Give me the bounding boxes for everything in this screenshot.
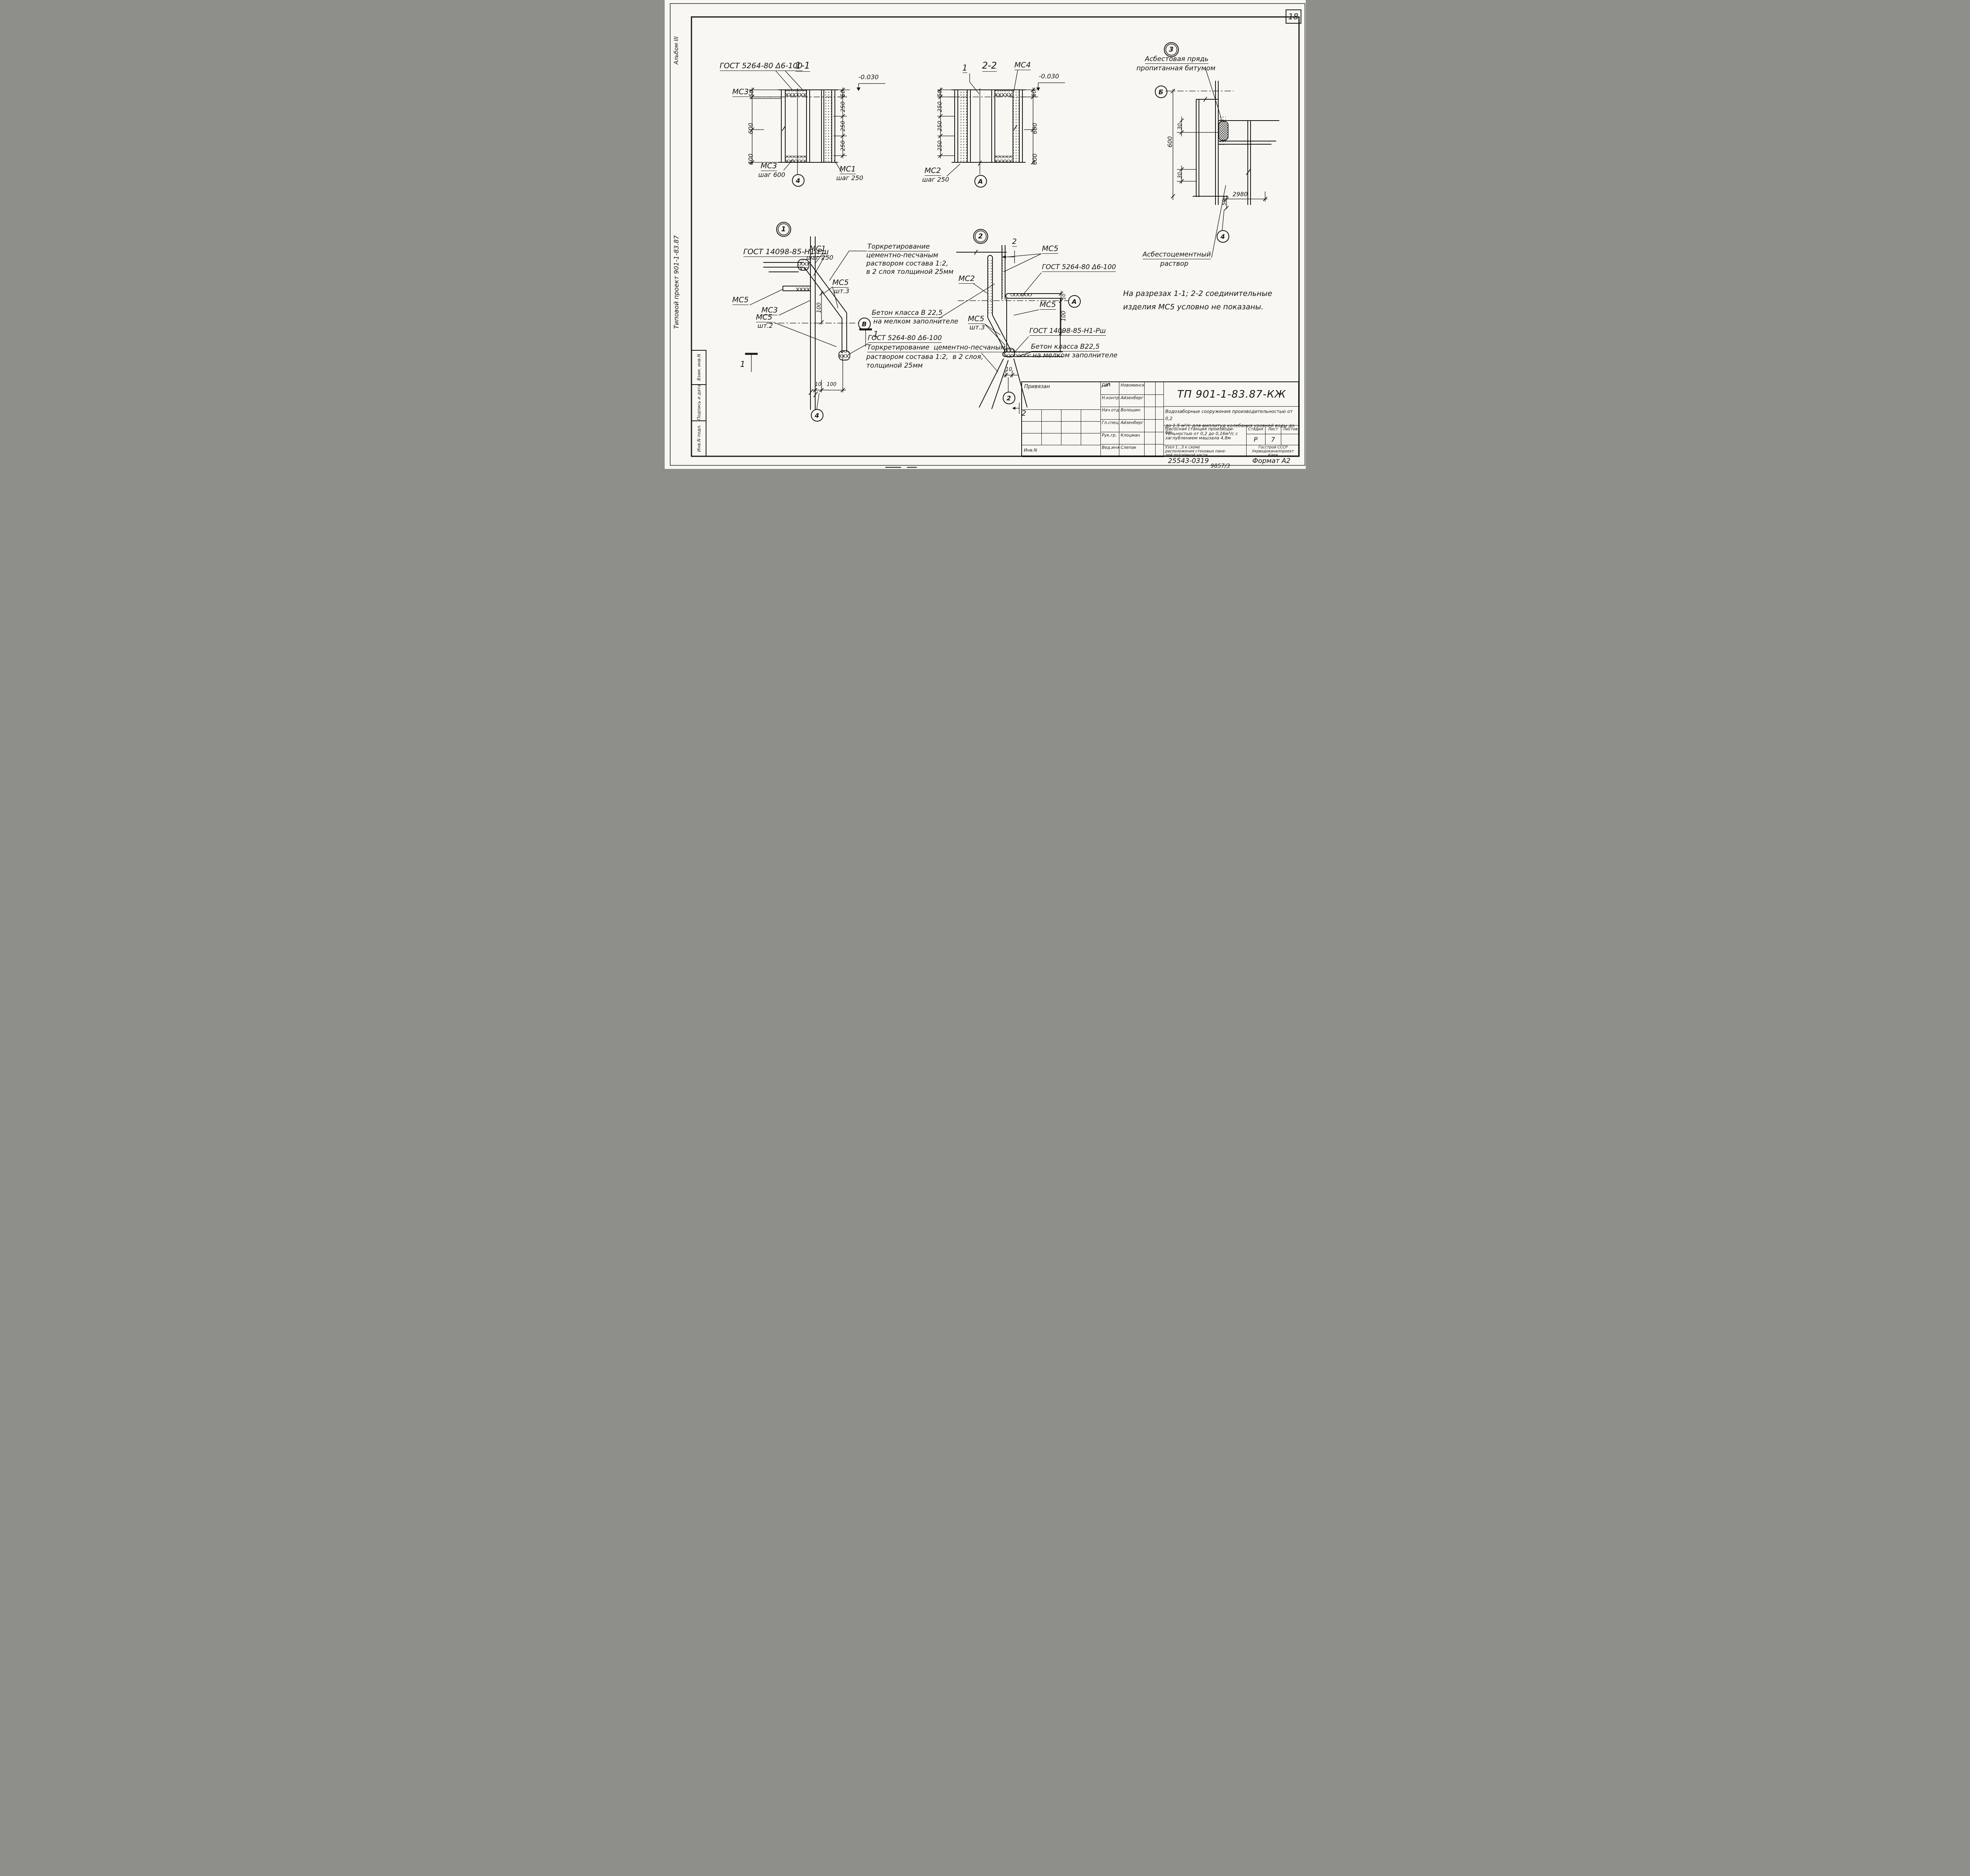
- sheets-value: [1281, 434, 1300, 445]
- role-title: Рук.гр.: [1101, 432, 1120, 444]
- drawing-label: 250: [840, 102, 846, 112]
- stage-label: Стадия: [1247, 426, 1266, 434]
- d1-ms5-left: МС5: [732, 296, 749, 305]
- drawing-label: 50: [840, 90, 846, 97]
- signature-scribble: [1145, 420, 1156, 432]
- drawing-label: раствором состава 1:2, в 2 слоя,: [866, 354, 983, 361]
- drawing-label: 30: [1177, 172, 1182, 179]
- drawing-label: шт.3: [834, 288, 849, 294]
- drawing-label: 50: [1031, 90, 1037, 97]
- drawing-label: 50: [749, 90, 755, 97]
- drawing-label: 100: [1061, 311, 1067, 322]
- sheet: Альбом IIIТиповой проект 901-1-83.87Взам…: [665, 0, 1306, 469]
- title-block-grid: [1022, 410, 1101, 445]
- node-Б: Б: [1155, 86, 1167, 98]
- drawing-label: шаг 250: [836, 175, 863, 181]
- doc-number: 25543-03: [1168, 458, 1201, 465]
- drawing-label: 250: [840, 141, 846, 151]
- s22-ms4: МС4: [1015, 61, 1031, 70]
- d1-concrete-1: Бетон класса В 22,5: [872, 310, 943, 318]
- d1-ms5-right: МС5: [833, 279, 849, 288]
- drawing-label: 10: [1061, 294, 1066, 299]
- project-code: ТП 901-1-83.87-КЖ: [1164, 382, 1300, 407]
- note-line-1: На разрезах 1-1; 2-2 соединительные: [1123, 290, 1272, 297]
- role-name: Айзенберг: [1119, 420, 1145, 432]
- drawing-label: 600: [1032, 123, 1038, 134]
- tb-grid-cell: [1061, 410, 1081, 422]
- drawing-label: 2980: [1233, 192, 1248, 197]
- stage-value: Р: [1247, 434, 1266, 445]
- tb-grid-cell: [1042, 410, 1061, 422]
- drawing-label: в 2 слоя толщиной 25мм: [866, 269, 953, 275]
- drawing-label: шаг 250: [922, 177, 949, 183]
- node-2: 2: [1003, 392, 1015, 404]
- stamp-cell-inv: Инв.N подл.: [697, 424, 701, 452]
- title-block: Привязан Инв.N ГИПНовоминскийН.контр.Айз…: [1021, 381, 1299, 456]
- d2-ms2: МС2: [959, 275, 975, 284]
- role-name: Айзенберг: [1119, 395, 1145, 407]
- album-label: Альбом III: [674, 36, 679, 64]
- tb-grid-cell: [1061, 433, 1081, 445]
- tb-grid-cell: [1081, 433, 1101, 445]
- node-4: 4: [1217, 230, 1229, 243]
- role-date-cell: [1156, 407, 1163, 419]
- tb-grid-cell: [1022, 410, 1042, 422]
- node-1: 1: [776, 222, 791, 237]
- role-date-cell: [1156, 395, 1163, 407]
- drawing-label: раствором состава 1:2,: [866, 260, 948, 267]
- drawing-label: 50: [937, 90, 943, 97]
- drawing-label: шт.3: [970, 324, 985, 331]
- tb-grid-cell: [1081, 422, 1101, 433]
- tb-grid-cell: [1022, 422, 1042, 433]
- s11-title: 1-1: [795, 61, 810, 72]
- sheet-value: 7: [1266, 434, 1281, 445]
- d2-concrete-1: Бетон класса В22,5: [1031, 344, 1100, 351]
- d3-asbest-1: Асбестовая прядь: [1145, 56, 1209, 64]
- drawing-label: 250: [937, 121, 943, 132]
- d1-ms5-bottom: МС5: [756, 314, 773, 322]
- s11-gost-weld: ГОСТ 5264-80 Δ6-100: [720, 62, 803, 71]
- text-line: лей подземной части: [1165, 454, 1246, 457]
- text-line: Киев: [1247, 454, 1300, 457]
- project-label: Типовой проект 901-1-83.87: [673, 235, 680, 329]
- d1-ms1: МС1: [810, 245, 826, 254]
- d1-marker-1a: 1: [740, 360, 745, 368]
- s22-node1-ref: 1: [963, 64, 968, 73]
- project-description-1: Водозаборные сооружения производительнос…: [1165, 408, 1299, 422]
- d1-shotcrete-1: Торкретирование: [868, 244, 930, 251]
- drawing-label: 250: [937, 141, 943, 151]
- drawing-label: 250: [840, 121, 846, 132]
- text-line: Насосная станция производи-: [1165, 427, 1246, 431]
- drawing-label: на мелком заполнителе: [873, 318, 959, 325]
- signature-scribble: [1145, 382, 1156, 394]
- d3-mortar-2: раствор: [1160, 261, 1189, 268]
- sheets-label: Листов: [1281, 426, 1300, 434]
- sheet-title-cell: Узел 1...3 к схемерасположения стеновых …: [1164, 445, 1247, 457]
- section-marker-bars: [745, 329, 872, 354]
- role-row: Гл.спец.Айзенберг: [1101, 420, 1163, 432]
- s11-elevation: -0.030: [859, 74, 879, 80]
- s22-elevation: -0.030: [1039, 73, 1059, 80]
- d2-gost-5264: ГОСТ 5264-80 Δ6-100: [1042, 264, 1116, 272]
- drawing-label: шаг 250: [807, 255, 833, 261]
- tb-grid-cell: [1081, 410, 1101, 422]
- tb-grid-cell: [1061, 422, 1081, 433]
- note-line-2: изделия МС5 условно не показаны.: [1123, 303, 1264, 311]
- object-cell: Насосная станция производи-тельностью от…: [1164, 426, 1247, 445]
- s11-ms3-left: МС3: [732, 88, 749, 97]
- drawing-label: толщиной 25мм: [866, 363, 923, 369]
- role-date-cell: [1156, 432, 1163, 444]
- role-title: Нач.отд.: [1101, 407, 1120, 419]
- d2-marker-2a: 2: [1012, 238, 1017, 247]
- role-name: Слепак: [1119, 444, 1145, 457]
- stamp-cell-podpis: Подпись и дата: [697, 384, 701, 420]
- drawing-label: на мелком заполнителе: [1033, 352, 1118, 359]
- drawing-label: 10: [815, 382, 821, 387]
- sheet-number: 18: [1288, 12, 1298, 21]
- sheet-number-box: 18: [1286, 9, 1301, 24]
- node-В: В: [858, 318, 871, 330]
- sheet-label: Лист: [1266, 426, 1281, 434]
- role-name: Новоминский: [1119, 382, 1145, 394]
- role-date-cell: [1156, 382, 1163, 394]
- signature-scribble: [1145, 444, 1156, 457]
- role-name: Волошин: [1119, 407, 1145, 419]
- role-row: Нач.отд.Волошин: [1101, 407, 1163, 420]
- s11-ms3-bottom: МС3: [761, 162, 777, 171]
- shotcrete2-1: Торкретирование цементно-песчаным: [867, 344, 1006, 352]
- d2-gost-14098: ГОСТ 14098-85-Н1-Рш: [1030, 328, 1106, 336]
- tb-grid-cell: [1042, 422, 1061, 433]
- s11-ms1: МС1: [840, 165, 856, 174]
- role-row: Н.контр.Айзенберг: [1101, 395, 1163, 407]
- role-title: Вед.инж.: [1101, 444, 1120, 457]
- role-date-cell: [1156, 420, 1163, 432]
- drawing-label: 50: [1222, 199, 1227, 205]
- signature-scribble: [1145, 432, 1156, 444]
- drawing-label: 600: [1167, 136, 1173, 148]
- d2-ms5-top: МС5: [1042, 245, 1059, 254]
- inv-cell: Инв.N: [1022, 445, 1101, 457]
- d3-asbest-2: пропитанная битумом: [1136, 65, 1215, 72]
- order-number: 9857/3: [1211, 463, 1230, 469]
- signature-scribble: [1145, 407, 1156, 419]
- drawing-label: 600: [748, 123, 754, 134]
- role-row: Рук.гр.Клоцман: [1101, 432, 1163, 445]
- d1-gost-5264: ГОСТ 5264-80 Δ6-100: [868, 335, 942, 343]
- d2-ms5-group: МС5: [968, 315, 985, 324]
- project-description: Водозаборные сооружения производительнос…: [1164, 407, 1300, 426]
- organization-cell: Госстрой СССРУкрводоканалпроектКиев: [1247, 445, 1300, 457]
- text-line: заглублением машзала 4,8м: [1165, 436, 1246, 441]
- binding-cell: Привязан: [1022, 382, 1101, 410]
- tb-grid-cell: [1022, 433, 1042, 445]
- drawing-label: 30: [1177, 123, 1182, 130]
- node-4: 4: [792, 174, 805, 187]
- drawing-label: 600: [1032, 154, 1038, 165]
- role-title: Гл.спец.: [1101, 420, 1120, 432]
- tb-grid-cell: [1042, 433, 1061, 445]
- drawing-label: 100: [827, 382, 836, 387]
- role-name: Клоцман: [1119, 432, 1145, 444]
- drawing-label: 100: [816, 303, 822, 313]
- s22-ms2: МС2: [925, 167, 941, 176]
- format-note: Формат А2: [1253, 458, 1291, 465]
- drawing-label: 600: [748, 154, 754, 165]
- node-А: А: [974, 175, 987, 188]
- signature-scribble: [1145, 395, 1156, 407]
- drawing-label: шаг 600: [758, 172, 785, 178]
- drawing-label: цементно-песчаным: [866, 252, 939, 259]
- role-date-cell: [1156, 444, 1163, 457]
- drawing-label: 10: [1005, 367, 1012, 372]
- sheet-ref: 19: [1201, 458, 1209, 465]
- drawing-label: шт.2: [758, 323, 773, 329]
- node-4: 4: [811, 409, 823, 422]
- node-А: А: [1068, 295, 1081, 308]
- d2-ms5-mid: МС5: [1040, 301, 1056, 310]
- drawing-label: 250: [937, 102, 943, 112]
- stamp-cell-vzam: Взам. инв.N: [697, 354, 701, 381]
- d3-mortar-1: Асбестоцементный: [1143, 251, 1211, 259]
- node-2: 2: [973, 229, 988, 244]
- roles-area: ГИПНовоминскийН.контр.АйзенбергНач.отд.В…: [1101, 382, 1164, 457]
- role-row: Вед.инж.Слепак: [1101, 444, 1163, 457]
- role-title: Н.контр.: [1101, 395, 1120, 407]
- s22-title: 2-2: [982, 61, 997, 72]
